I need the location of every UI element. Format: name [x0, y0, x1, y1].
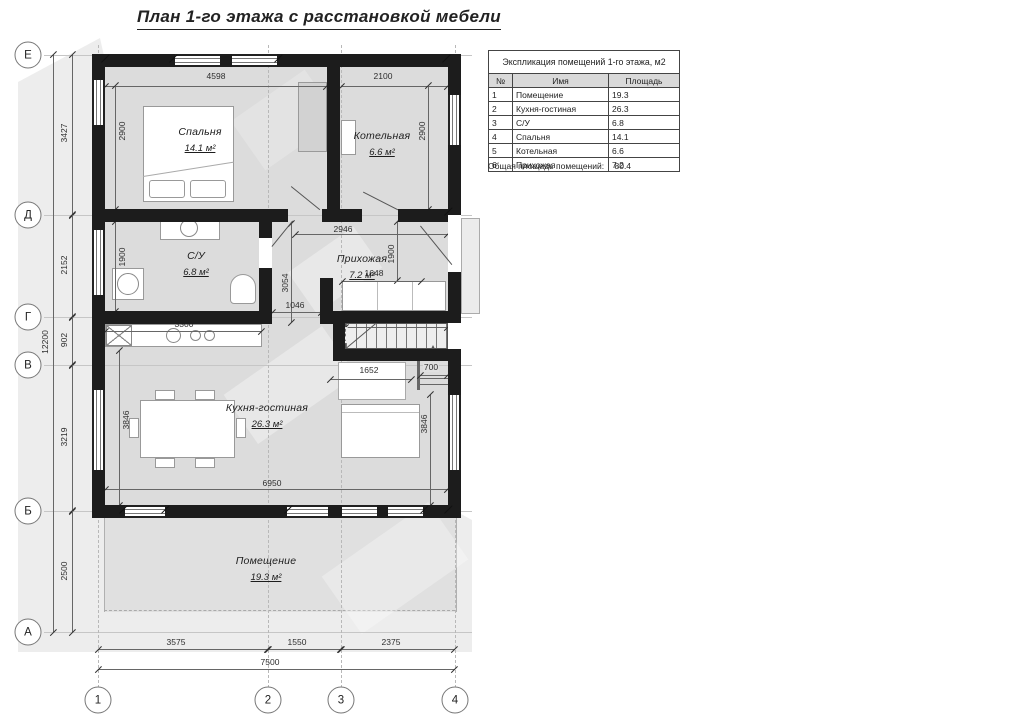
hall-wardrobe-divider2: [412, 282, 413, 310]
dim-bottom-seg-2: [268, 649, 341, 650]
window-bottom-3: [342, 505, 377, 518]
dim-label-bottom-seg-3: 2375: [382, 638, 401, 647]
dim-hall-width: [295, 234, 448, 235]
wall-left-1: [92, 54, 105, 80]
dim-label-left-seg-4: 3219: [60, 428, 69, 447]
row-name: Кухня-гостиная: [513, 102, 609, 116]
bedroom-wardrobe: [298, 82, 327, 152]
dim-left-seg-2: [72, 215, 73, 317]
legend-col-name: Имя: [513, 74, 609, 88]
dim-stairs-width: [345, 327, 448, 328]
axis-label: Е: [24, 49, 32, 61]
window-kitchen-left: [92, 390, 105, 470]
dim-label-hall-width: 2946: [334, 225, 353, 234]
dim-counter-width: [105, 331, 262, 332]
dim-label-kitchen-height-left: 3846: [122, 411, 131, 430]
axis-bubble-B: Б: [15, 498, 42, 525]
pillow-right: [190, 180, 226, 198]
dim-label-bedroom-height: 2900: [118, 122, 127, 141]
axis-bubble-4: 4: [442, 687, 469, 714]
table-row: 5Котельная6.6: [489, 144, 680, 158]
dim-label-left-seg-2: 2152: [60, 256, 69, 275]
axis-label: В: [24, 359, 32, 371]
window-bedroom-top-1: [175, 54, 220, 67]
window-kitchen-right: [448, 395, 461, 470]
axis-bubble-E: Е: [15, 42, 42, 69]
row-area: 26.3: [609, 102, 680, 116]
dim-label-corridor-height: 3054: [281, 274, 290, 293]
row-num: 3: [489, 116, 513, 130]
table-row: 4Спальня14.1: [489, 130, 680, 144]
door-opening-stairs-exit: [448, 323, 461, 349]
axis-label: 4: [452, 694, 458, 706]
axis-bubble-D: Д: [15, 202, 42, 229]
wall-bottom-2: [165, 505, 287, 518]
dim-label-kitchen-height-right: 3846: [420, 415, 429, 434]
room-name: Спальня: [178, 126, 221, 138]
wall-right-3: [448, 272, 461, 323]
dining-table: [140, 400, 235, 458]
wall-stairs-left: [333, 311, 345, 361]
dim-left-seg-3: [72, 317, 73, 365]
window-bedroom-left: [92, 80, 105, 125]
axis-bubble-2: 2: [255, 687, 282, 714]
wall-right-1: [448, 54, 461, 95]
wall-right-4: [448, 349, 461, 395]
total-area-value: 80.4: [614, 161, 631, 171]
legend-col-num: №: [489, 74, 513, 88]
dim-label-bottom-seg-1: 3575: [167, 638, 186, 647]
wall-G: [92, 311, 272, 324]
floor-plan-canvas: 4598 2100 2900 2900 1900 2946 1900 1648 …: [0, 0, 1024, 724]
room-name: Помещение: [236, 555, 297, 567]
ladder-rungs: [420, 378, 448, 390]
wall-top-right: [277, 54, 461, 67]
row-area: 19.3: [609, 88, 680, 102]
axis-label: 3: [338, 694, 344, 706]
row-area: 6.8: [609, 116, 680, 130]
wall-stairs-bottom: [333, 349, 448, 361]
room-label-boiler: Котельная 6.6 м²: [354, 130, 411, 160]
dim-left-seg-1: [72, 55, 73, 215]
room-name: Прихожая: [337, 253, 387, 265]
wall-left-3: [92, 295, 105, 390]
dim-label-bottom-seg-2: 1550: [288, 638, 307, 647]
wall-bottom-3: [423, 505, 461, 518]
wall-su-right-bottom: [259, 268, 272, 311]
window-bottom-1: [125, 505, 165, 518]
room-label-su: С/У 6.8 м²: [183, 250, 209, 280]
wall-su-right-top: [259, 222, 272, 238]
dim-label-left-seg-5: 2500: [60, 562, 69, 581]
row-num: 1: [489, 88, 513, 102]
dim-label-corridor-width: 1046: [286, 301, 305, 310]
row-area: 14.1: [609, 130, 680, 144]
axis-line-V: [44, 365, 472, 366]
dim-label-boiler-width: 2100: [374, 72, 393, 81]
dim-left-seg-5: [72, 511, 73, 632]
axis-bubble-3: 3: [328, 687, 355, 714]
dim-bottom-seg-1: [98, 649, 268, 650]
axis-label: 1: [95, 694, 101, 706]
dim-label-left-overall: 12200: [41, 330, 50, 354]
row-num: 4: [489, 130, 513, 144]
legend-table-title: Экспликация помещений 1-го этажа, м2: [489, 51, 680, 74]
room-name: С/У: [183, 250, 209, 262]
chair-top1: [155, 390, 175, 400]
wall-D-left: [105, 209, 288, 222]
wall-hall-left: [320, 278, 333, 324]
dim-label-bedroom-width: 4598: [207, 72, 226, 81]
room-name: Кухня-гостиная: [226, 402, 308, 414]
fridge-icon: [106, 325, 132, 346]
window-bedroom-top-2: [232, 54, 277, 67]
axis-label: Г: [25, 311, 31, 323]
table-row: 1Помещение19.3: [489, 88, 680, 102]
axis-bubble-1: 1: [85, 687, 112, 714]
window-boiler-right: [448, 95, 461, 145]
dim-boiler-height: [428, 86, 429, 209]
axis-label: Б: [24, 505, 32, 517]
room-area: 6.6 м²: [369, 147, 395, 158]
toilet: [230, 274, 256, 304]
axis-label: 2: [265, 694, 271, 706]
dim-ladder-width: [420, 375, 448, 376]
room-area: 7.2 м²: [349, 270, 375, 281]
table-row: 3С/У6.8: [489, 116, 680, 130]
dim-bedroom-width: [105, 86, 327, 87]
wall-D-mid: [322, 209, 362, 222]
room-label-bedroom: Спальня 14.1 м²: [178, 126, 221, 156]
pillow-left: [149, 180, 185, 198]
dim-label-boiler-height: 2900: [418, 122, 427, 141]
hall-wardrobe-divider1: [377, 282, 378, 310]
total-area-label: Общая площадь помещений:: [488, 161, 604, 171]
row-name: Спальня: [513, 130, 609, 144]
wall-stairs-top: [333, 311, 448, 323]
row-area: 6.6: [609, 144, 680, 158]
dim-label-hall-height: 1900: [387, 245, 396, 264]
entrance-porch: [461, 218, 480, 314]
wall-bottom-pier1: [328, 505, 342, 518]
axis-label: А: [24, 626, 32, 638]
room-area: 26.3 м²: [252, 419, 283, 430]
window-bottom-4: [388, 505, 423, 518]
wall-right-2: [448, 145, 461, 215]
window-su-left: [92, 230, 105, 295]
wall-D-right: [398, 209, 448, 222]
dim-hall-height: [397, 222, 398, 280]
dim-su-height: [115, 222, 116, 311]
chair-bottom2: [195, 458, 215, 468]
axis-label: Д: [24, 209, 32, 221]
dim-kitchen-width: [105, 489, 448, 490]
dim-left-overall: [53, 55, 54, 632]
page-title: План 1-го этажа с расстановкой мебели: [137, 7, 501, 30]
dim-label-su-height: 1900: [118, 248, 127, 267]
room-label-terrace: Помещение 19.3 м²: [236, 555, 297, 585]
dim-label-kitchen-width: 6950: [263, 479, 282, 488]
sofa-back-line: [342, 412, 419, 413]
dim-opening-width: [330, 379, 412, 380]
dim-label-bottom-overall: 7500: [261, 658, 280, 667]
room-label-hall: Прихожая 7.2 м²: [337, 253, 387, 283]
wall-top-mullion: [220, 54, 232, 67]
table-row: 2Кухня-гостиная26.3: [489, 102, 680, 116]
room-area: 19.3 м²: [251, 572, 282, 583]
dim-bedroom-height: [115, 86, 116, 209]
dim-bottom-seg-3: [341, 649, 455, 650]
wall-left-2: [92, 125, 105, 230]
room-area: 6.8 м²: [183, 267, 209, 278]
dim-label-opening-width: 1652: [360, 366, 379, 375]
room-label-kitchen: Кухня-гостиная 26.3 м²: [226, 402, 308, 432]
legend-table: Экспликация помещений 1-го этажа, м2 № И…: [488, 50, 680, 172]
axis-line-2: [268, 45, 269, 688]
axis-line-A: [44, 632, 472, 633]
room-area: 14.1 м²: [185, 143, 216, 154]
axis-bubble-V: В: [15, 352, 42, 379]
row-num: 5: [489, 144, 513, 158]
chair-top2: [195, 390, 215, 400]
legend-col-area: Площадь: [609, 74, 680, 88]
window-bottom-2: [287, 505, 328, 518]
dim-corridor-width: [272, 312, 322, 313]
total-area-line: Общая площадь помещений: 80.4: [488, 161, 631, 171]
wall-bedroom-boiler-divider: [327, 67, 340, 209]
door-opening-su: [259, 238, 272, 268]
hall-wardrobe: [342, 281, 446, 311]
row-num: 2: [489, 102, 513, 116]
wall-bottom-pier2: [377, 505, 388, 518]
axis-bubble-G: Г: [15, 304, 42, 331]
dim-label-left-seg-1: 3427: [60, 124, 69, 143]
washing-machine-drum-icon: [117, 273, 139, 295]
terrace-edge: [104, 610, 455, 611]
row-name: Котельная: [513, 144, 609, 158]
dim-boiler-width: [341, 86, 448, 87]
dim-label-left-seg-3: 902: [60, 333, 69, 347]
dim-left-seg-4: [72, 365, 73, 511]
dim-label-ladder-width: 700: [423, 363, 439, 372]
row-name: С/У: [513, 116, 609, 130]
room-name: Котельная: [354, 130, 411, 142]
row-name: Помещение: [513, 88, 609, 102]
axis-bubble-A: А: [15, 619, 42, 646]
dim-bottom-overall: [98, 669, 455, 670]
chair-bottom1: [155, 458, 175, 468]
